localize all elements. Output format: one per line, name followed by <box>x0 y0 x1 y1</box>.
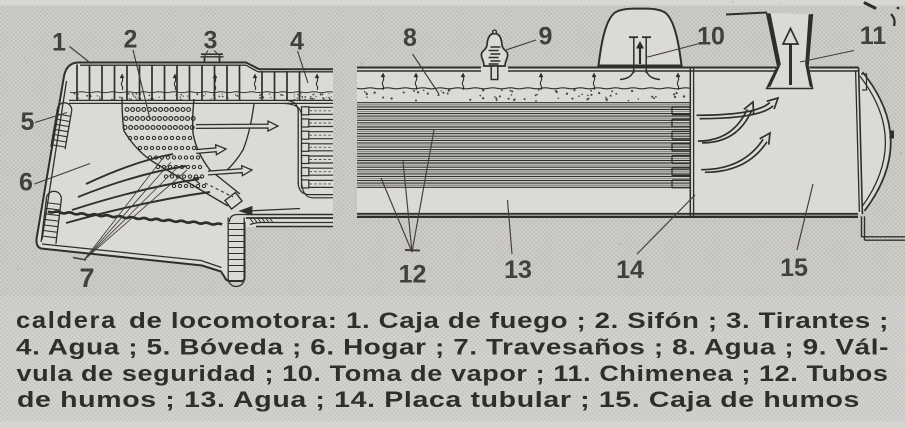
svg-text:de humos ; 13. Agua ; 14. Plac: de humos ; 13. Agua ; 14. Placa tubular … <box>17 387 860 412</box>
svg-text:14: 14 <box>616 256 644 284</box>
svg-text:2: 2 <box>124 26 138 54</box>
svg-text:11: 11 <box>860 22 887 50</box>
svg-text:1: 1 <box>52 29 66 57</box>
svg-text:15: 15 <box>780 254 808 282</box>
svg-text:6: 6 <box>19 169 33 197</box>
svg-text:de locomotora: 1. Caja de fueg: de locomotora: 1. Caja de fuego ; 2. Sif… <box>129 308 889 333</box>
svg-text:7: 7 <box>79 263 94 293</box>
svg-text:13: 13 <box>504 256 532 284</box>
svg-text:10: 10 <box>697 23 725 51</box>
svg-text:5: 5 <box>21 108 35 136</box>
svg-text:3: 3 <box>204 27 218 55</box>
svg-text:caldera: caldera <box>16 307 117 333</box>
svg-text:4. Agua ; 5. Bóveda ; 6. Hogar: 4. Agua ; 5. Bóveda ; 6. Hogar ; 7. Trav… <box>16 335 889 360</box>
svg-text:8: 8 <box>403 24 417 52</box>
svg-text:vula de seguridad ; 10. Toma d: vula de seguridad ; 10. Toma de vapor ; … <box>17 361 889 386</box>
svg-text:12: 12 <box>399 261 427 289</box>
svg-text:9: 9 <box>539 23 553 51</box>
